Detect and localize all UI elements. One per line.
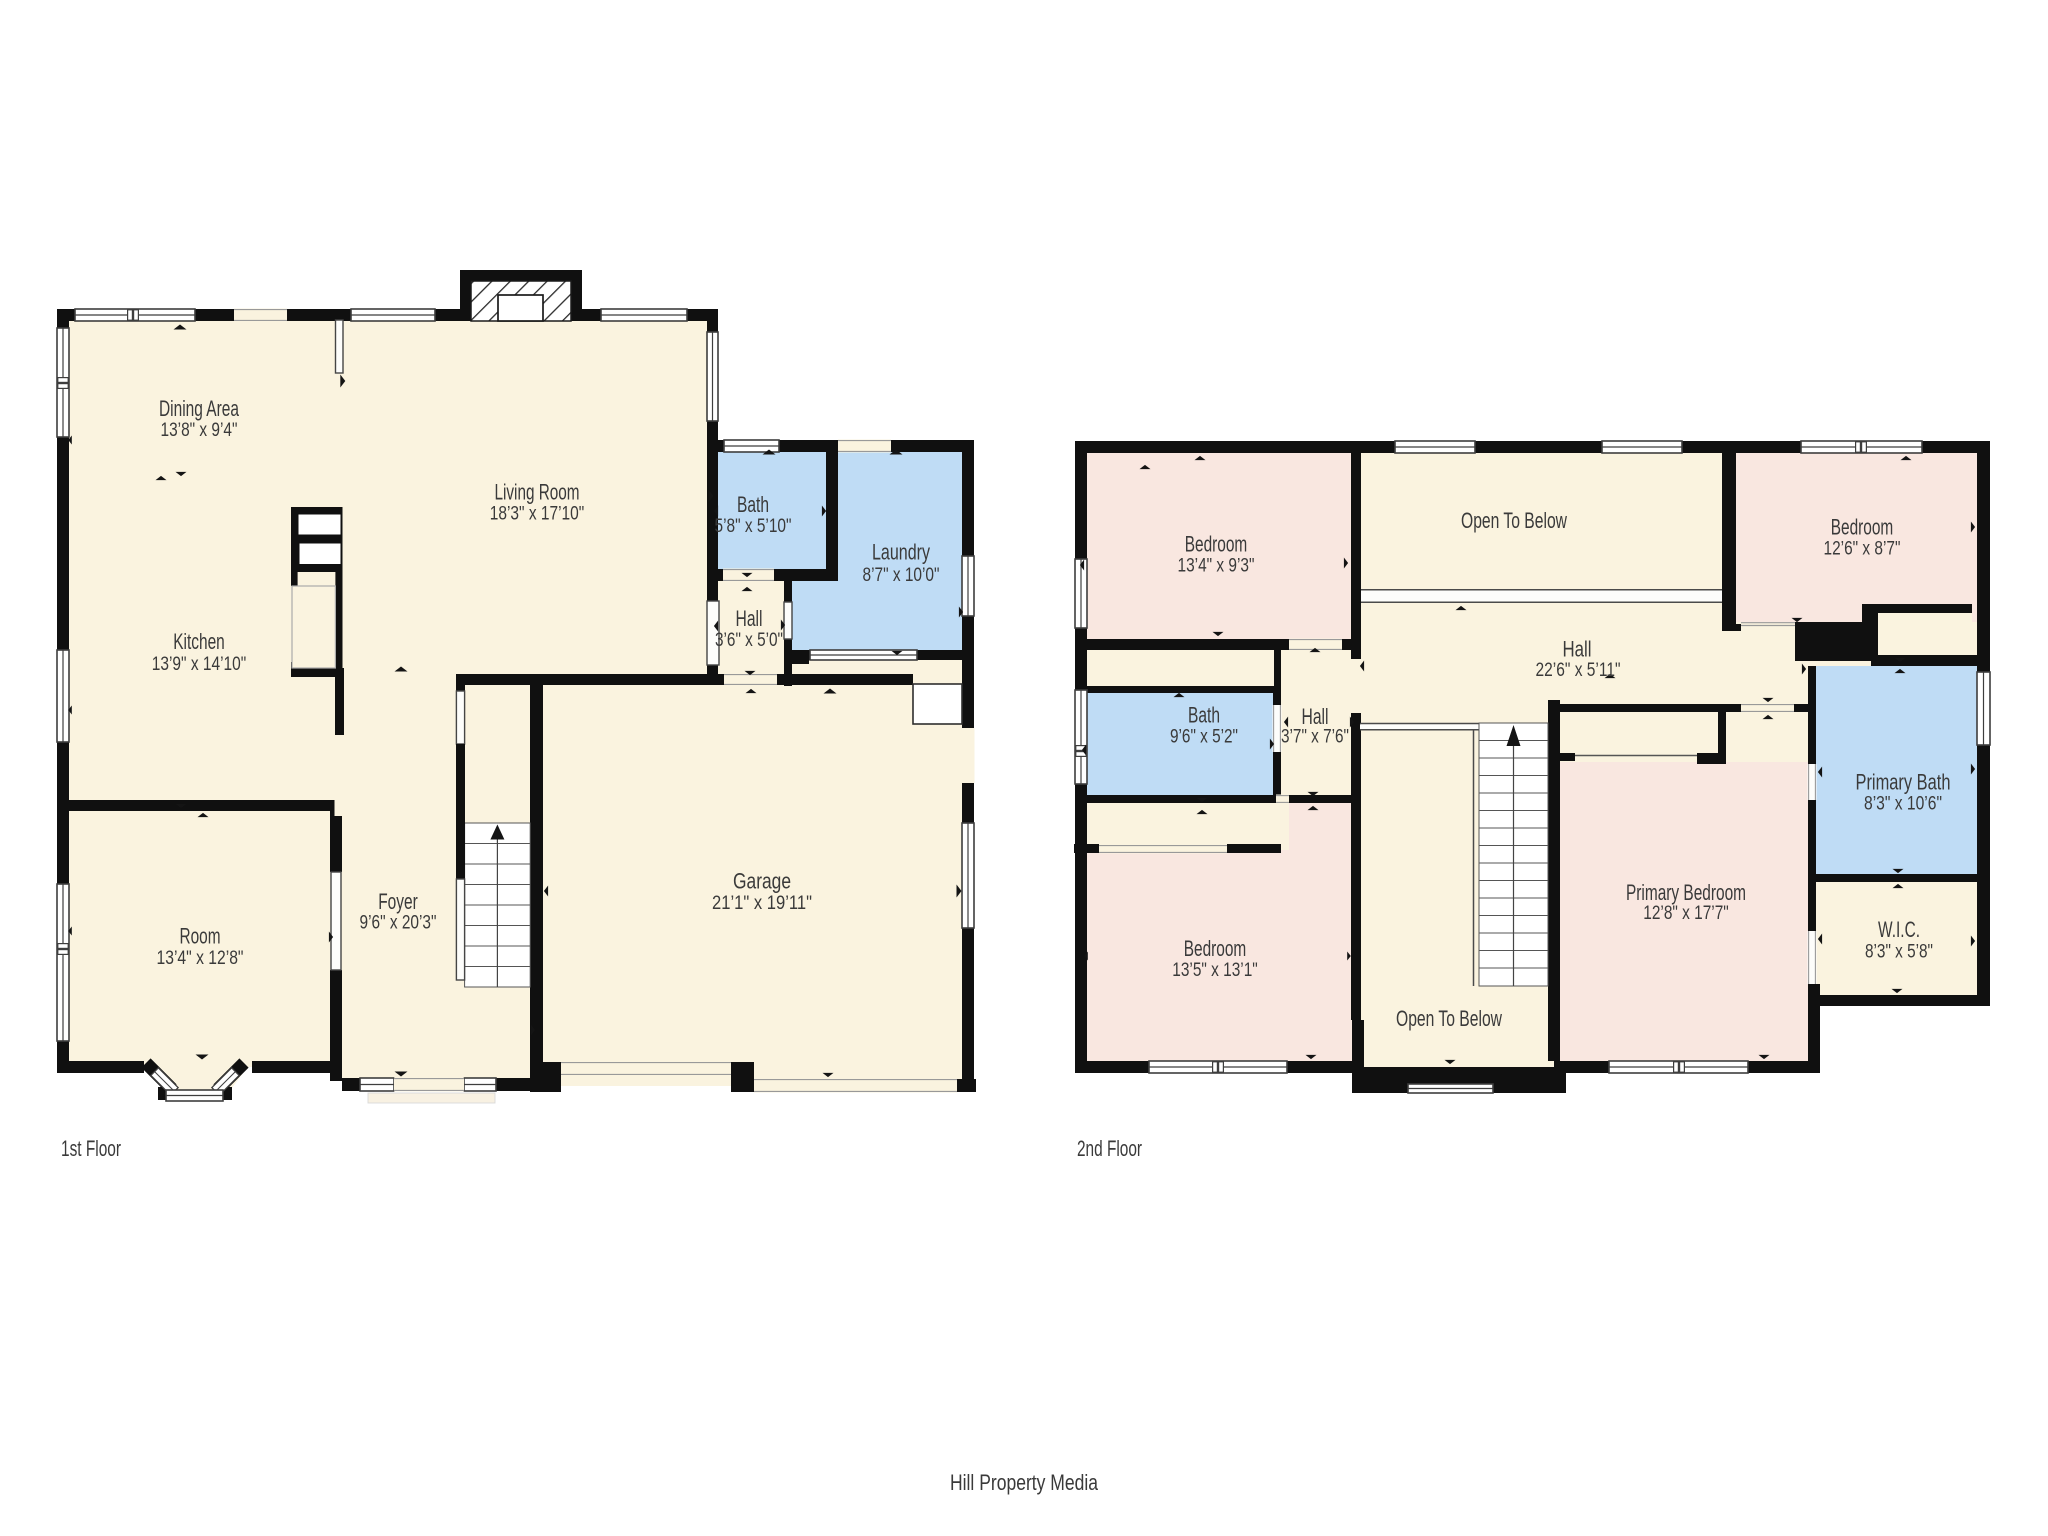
svg-text:Bedroom: Bedroom — [1185, 532, 1248, 557]
svg-text:Bath: Bath — [737, 492, 769, 517]
svg-text:Living Room: Living Room — [495, 480, 580, 505]
svg-text:Garage: Garage — [733, 869, 791, 894]
svg-text:3’6" x 5’0": 3’6" x 5’0" — [715, 629, 783, 651]
svg-text:9’6" x 5’2": 9’6" x 5’2" — [1170, 726, 1238, 748]
svg-text:5’8" x 5’10": 5’8" x 5’10" — [715, 515, 792, 537]
svg-text:8’3" x 5’8": 8’3" x 5’8" — [1865, 941, 1933, 963]
svg-text:13’5" x 13’1": 13’5" x 13’1" — [1172, 959, 1258, 981]
svg-text:Primary Bath: Primary Bath — [1856, 770, 1951, 795]
svg-text:Bedroom: Bedroom — [1184, 936, 1247, 961]
svg-text:21’1" x 19’11": 21’1" x 19’11" — [712, 892, 812, 914]
svg-text:Bath: Bath — [1188, 703, 1220, 728]
svg-text:12’6" x 8’7": 12’6" x 8’7" — [1824, 538, 1901, 560]
svg-text:13’9" x 14’10": 13’9" x 14’10" — [152, 653, 247, 675]
svg-text:W.I.C.: W.I.C. — [1878, 917, 1920, 942]
svg-text:Open To Below: Open To Below — [1396, 1006, 1502, 1031]
svg-text:Hall: Hall — [736, 606, 763, 631]
svg-text:13’4" x 9’3": 13’4" x 9’3" — [1178, 555, 1255, 577]
svg-text:Kitchen: Kitchen — [173, 629, 225, 654]
svg-text:Foyer: Foyer — [378, 889, 418, 914]
svg-text:2nd Floor: 2nd Floor — [1077, 1136, 1142, 1161]
svg-text:8’3" x 10’6": 8’3" x 10’6" — [1864, 793, 1942, 815]
svg-text:Open To Below: Open To Below — [1461, 508, 1567, 533]
svg-text:Hill Property Media: Hill Property Media — [950, 1470, 1099, 1495]
svg-text:Hall: Hall — [1563, 637, 1592, 662]
svg-text:13’4" x 12’8": 13’4" x 12’8" — [157, 947, 244, 969]
svg-text:22’6" x 5’11": 22’6" x 5’11" — [1536, 659, 1621, 681]
svg-text:12’8" x 17’7": 12’8" x 17’7" — [1643, 902, 1729, 924]
svg-text:Dining Area: Dining Area — [159, 396, 240, 421]
svg-text:9’6" x 20’3": 9’6" x 20’3" — [360, 912, 437, 934]
svg-text:18’3" x 17’10": 18’3" x 17’10" — [490, 503, 585, 525]
svg-text:1st Floor: 1st Floor — [61, 1136, 121, 1161]
svg-text:8’7" x 10’0": 8’7" x 10’0" — [863, 564, 940, 586]
svg-text:Room: Room — [180, 924, 221, 949]
svg-text:3’7" x 7’6": 3’7" x 7’6" — [1281, 726, 1349, 748]
svg-text:Bedroom: Bedroom — [1831, 515, 1894, 540]
svg-text:13’8" x 9’4": 13’8" x 9’4" — [161, 419, 238, 441]
svg-text:Laundry: Laundry — [872, 540, 930, 565]
